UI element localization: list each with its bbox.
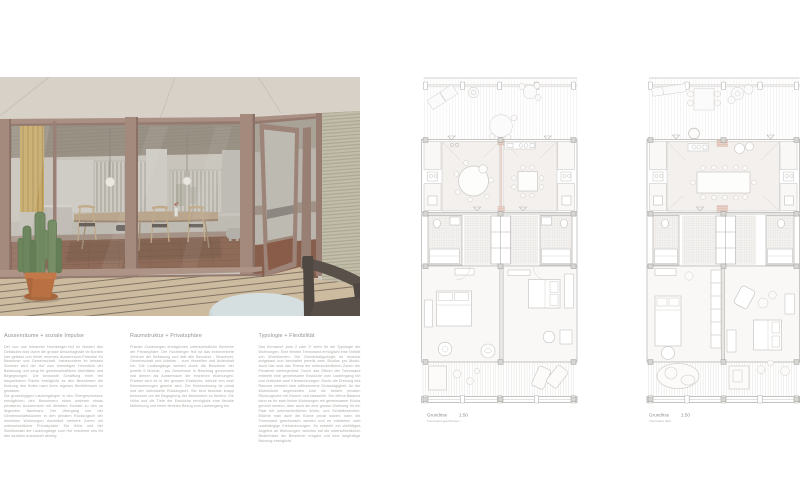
svg-text:Trennwand geschlossen: Trennwand geschlossen bbox=[427, 419, 460, 423]
svg-text:1:50: 1:50 bbox=[459, 413, 468, 418]
svg-text:Trennwand offen: Trennwand offen bbox=[649, 419, 672, 423]
svg-text:1:50: 1:50 bbox=[681, 413, 690, 418]
svg-text:Grundriss: Grundriss bbox=[649, 413, 670, 418]
svg-text:Grundriss: Grundriss bbox=[427, 413, 448, 418]
